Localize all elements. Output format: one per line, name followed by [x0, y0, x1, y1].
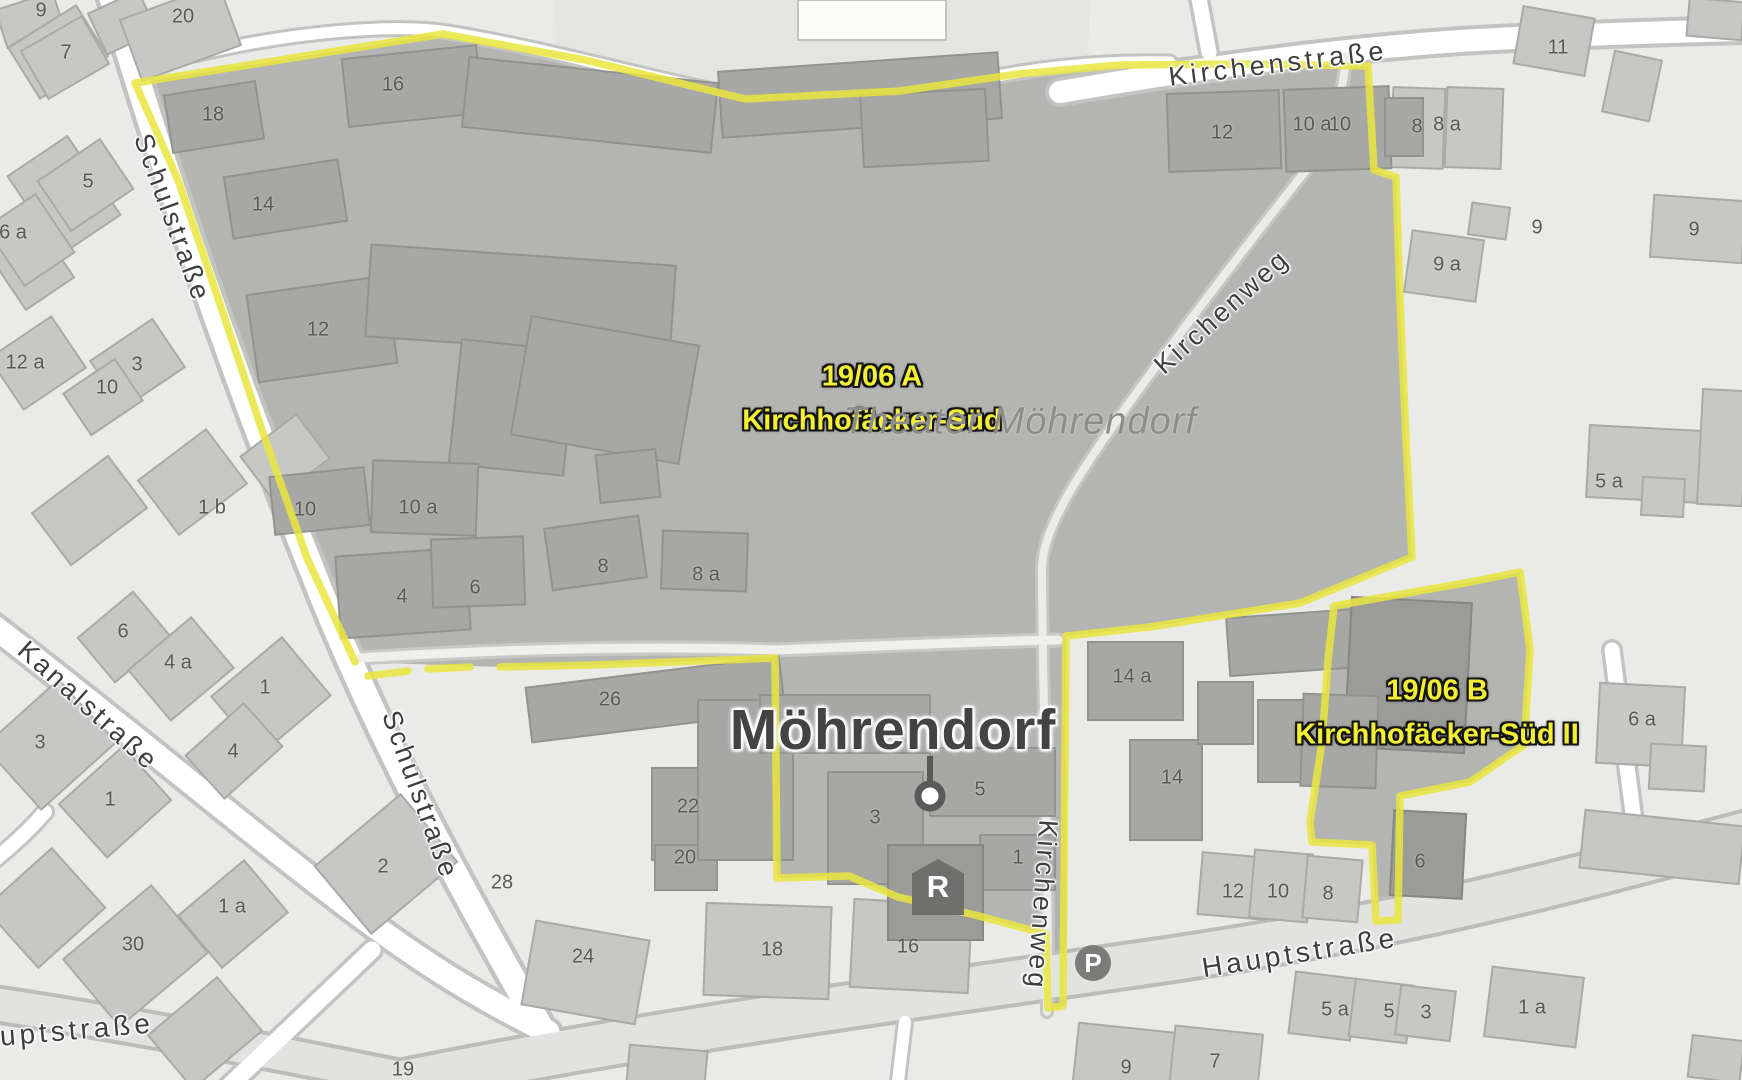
building: [930, 748, 1055, 816]
building: [1688, 1035, 1742, 1080]
building: [32, 456, 147, 565]
area-a-boundary-dash: [428, 667, 470, 669]
building: [1072, 1023, 1184, 1080]
building: [596, 449, 661, 503]
building: [371, 460, 478, 536]
building: [1395, 985, 1456, 1041]
building: [980, 835, 1055, 890]
building: [1404, 230, 1484, 301]
white-building: [798, 0, 946, 40]
building: [760, 695, 930, 753]
building: [1302, 856, 1362, 923]
map-canvas[interactable]: RP Theater Möhrendorf Möhrendorf Schulst…: [0, 0, 1742, 1080]
building: [1641, 477, 1685, 517]
building: [703, 903, 831, 999]
building: [1697, 389, 1742, 506]
building: [661, 531, 748, 592]
building: [1300, 694, 1378, 789]
building: [1288, 971, 1357, 1040]
building: [544, 516, 647, 591]
building: [1650, 195, 1742, 263]
building: [1686, 0, 1742, 40]
building: [1468, 203, 1510, 240]
building: [860, 89, 989, 167]
building: [1198, 682, 1253, 744]
building: [1088, 642, 1183, 720]
building: [1385, 98, 1423, 156]
building: [1167, 90, 1282, 172]
building: [431, 536, 525, 607]
building: [626, 1045, 707, 1080]
building: [1445, 87, 1504, 169]
building: [1169, 1026, 1263, 1080]
area-a-boundary-dash: [368, 671, 408, 676]
building: [1484, 967, 1584, 1048]
building: [1130, 740, 1202, 840]
building: [1514, 6, 1595, 76]
map-graphics: [0, 0, 1742, 1080]
building: [342, 45, 483, 127]
building: [1649, 744, 1706, 792]
building: [888, 845, 983, 940]
building: [1602, 51, 1662, 122]
building: [138, 429, 247, 534]
